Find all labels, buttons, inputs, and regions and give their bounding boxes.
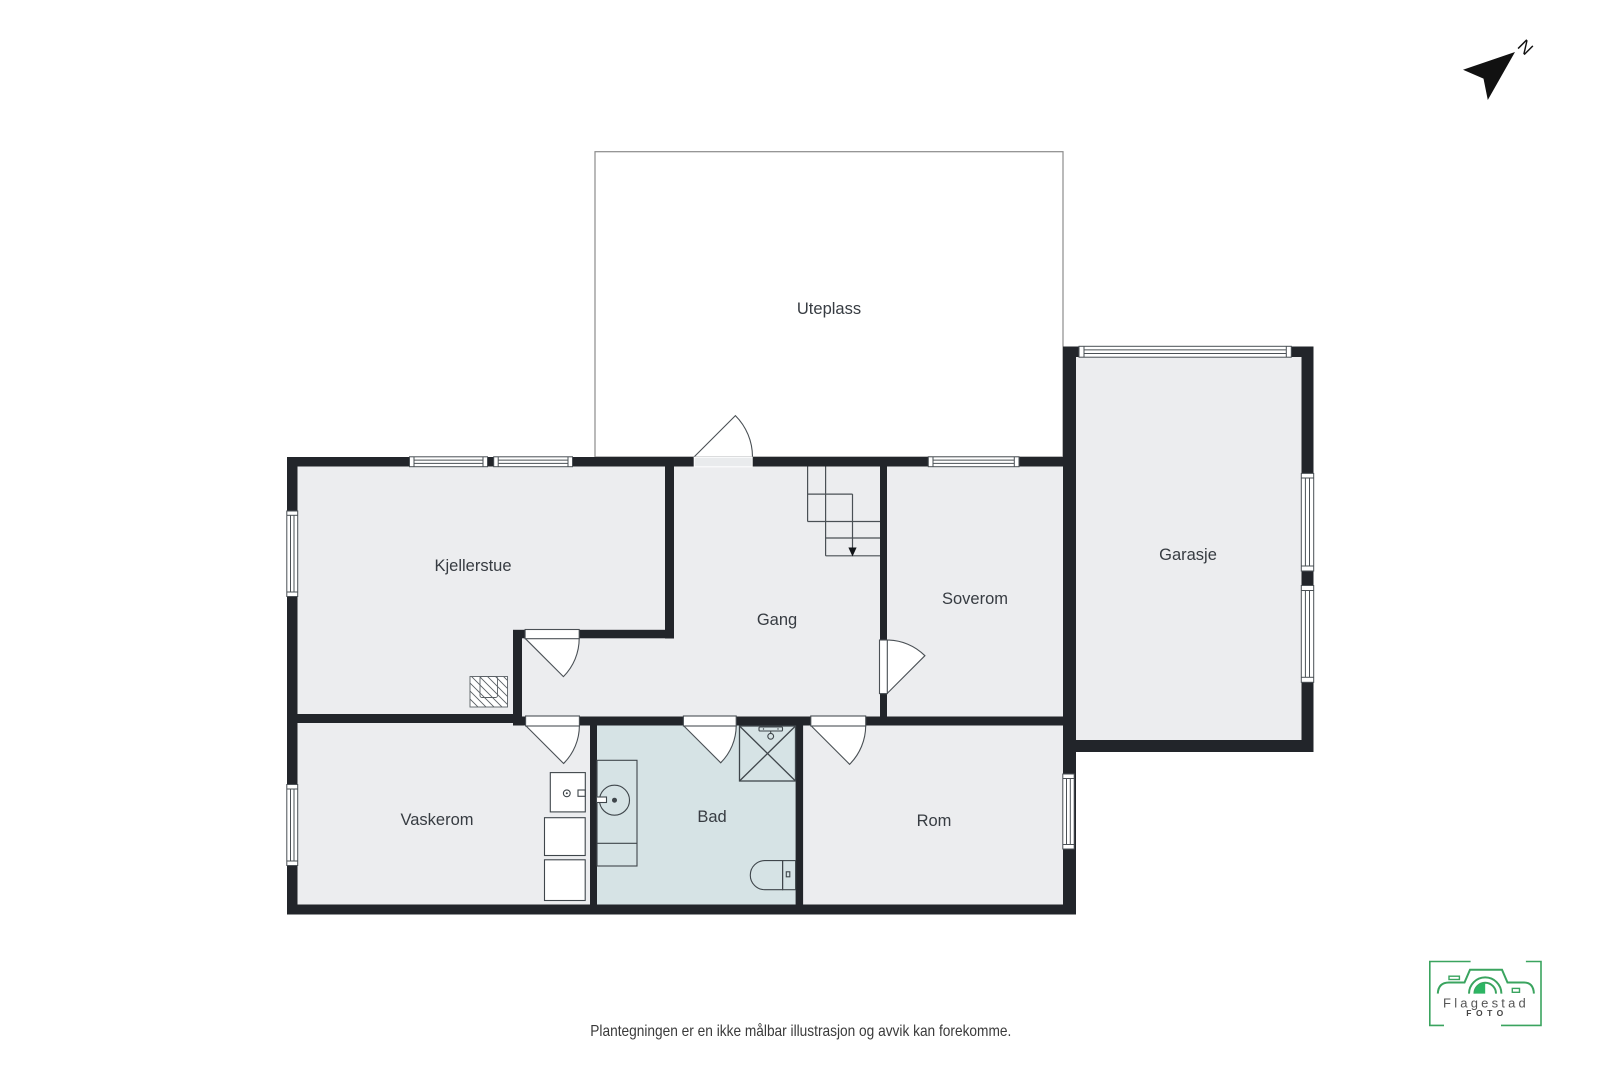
svg-text:Vaskerom: Vaskerom: [400, 811, 473, 829]
svg-text:Plantegningen er en ikke målba: Plantegningen er en ikke målbar illustra…: [590, 1022, 1011, 1040]
svg-text:Gang: Gang: [757, 611, 797, 629]
svg-text:Soverom: Soverom: [942, 590, 1008, 608]
svg-text:Garasje: Garasje: [1159, 546, 1217, 564]
svg-text:Bad: Bad: [697, 808, 726, 826]
svg-text:Kjellerstue: Kjellerstue: [434, 557, 511, 575]
svg-text:Uteplass: Uteplass: [797, 300, 861, 318]
svg-text:Rom: Rom: [917, 812, 952, 830]
svg-text:FOTO: FOTO: [1466, 1008, 1507, 1018]
